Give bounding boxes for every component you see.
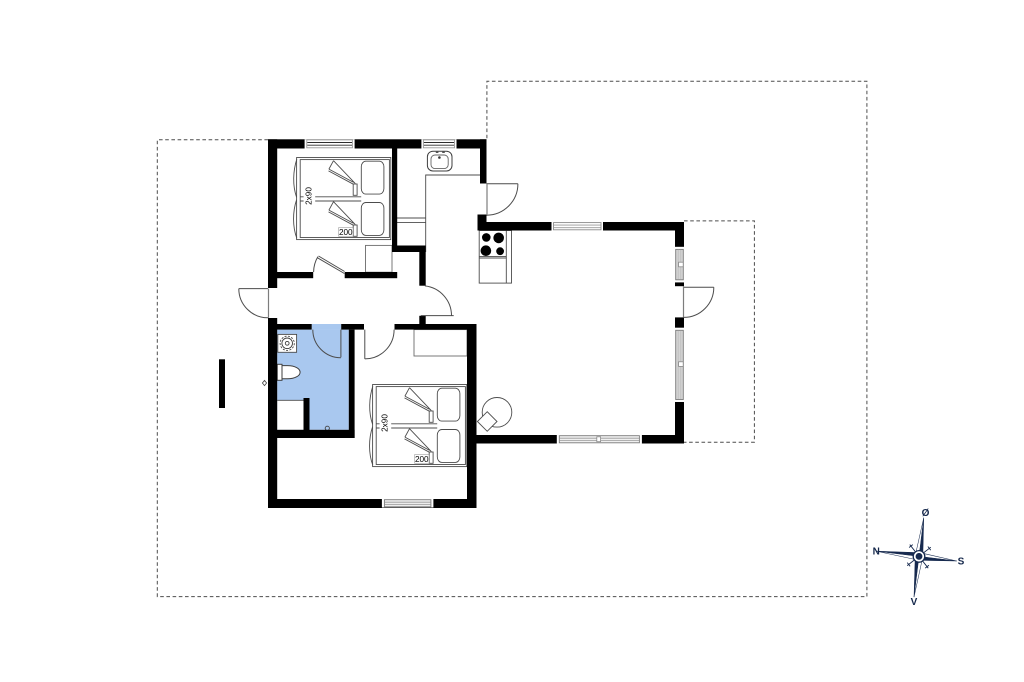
svg-text:N: N (873, 547, 880, 558)
svg-text:Ø: Ø (922, 508, 930, 519)
svg-text:V: V (911, 597, 918, 608)
svg-text:S: S (958, 557, 965, 568)
